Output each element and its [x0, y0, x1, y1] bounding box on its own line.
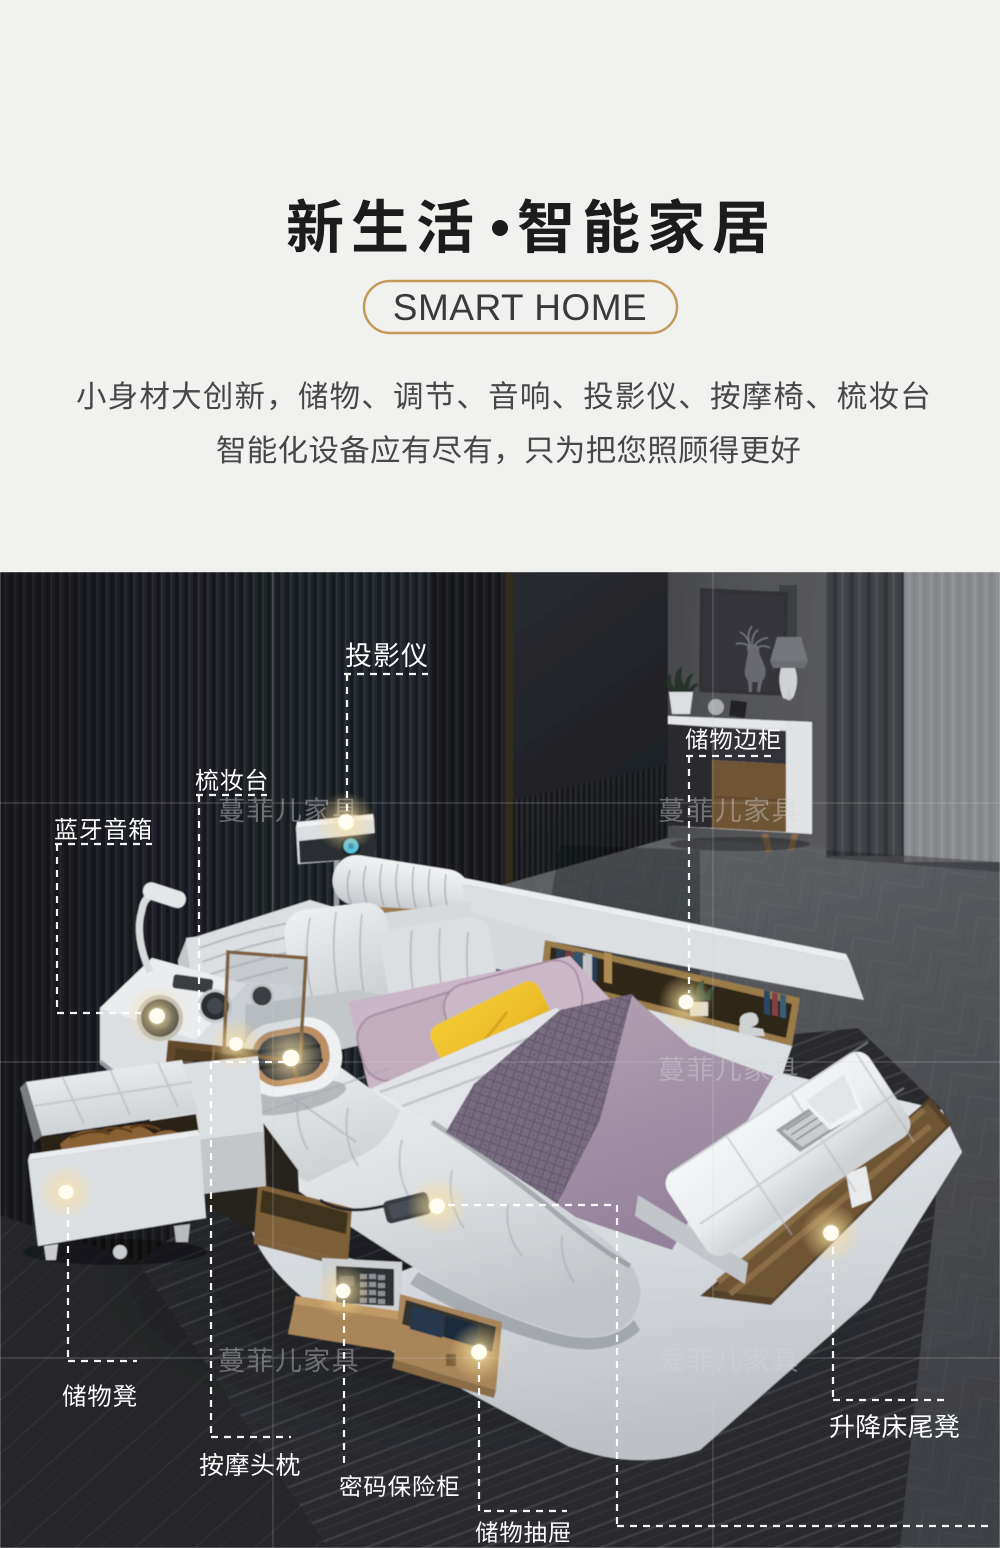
svg-text:SMART HOME: SMART HOME — [393, 287, 647, 328]
